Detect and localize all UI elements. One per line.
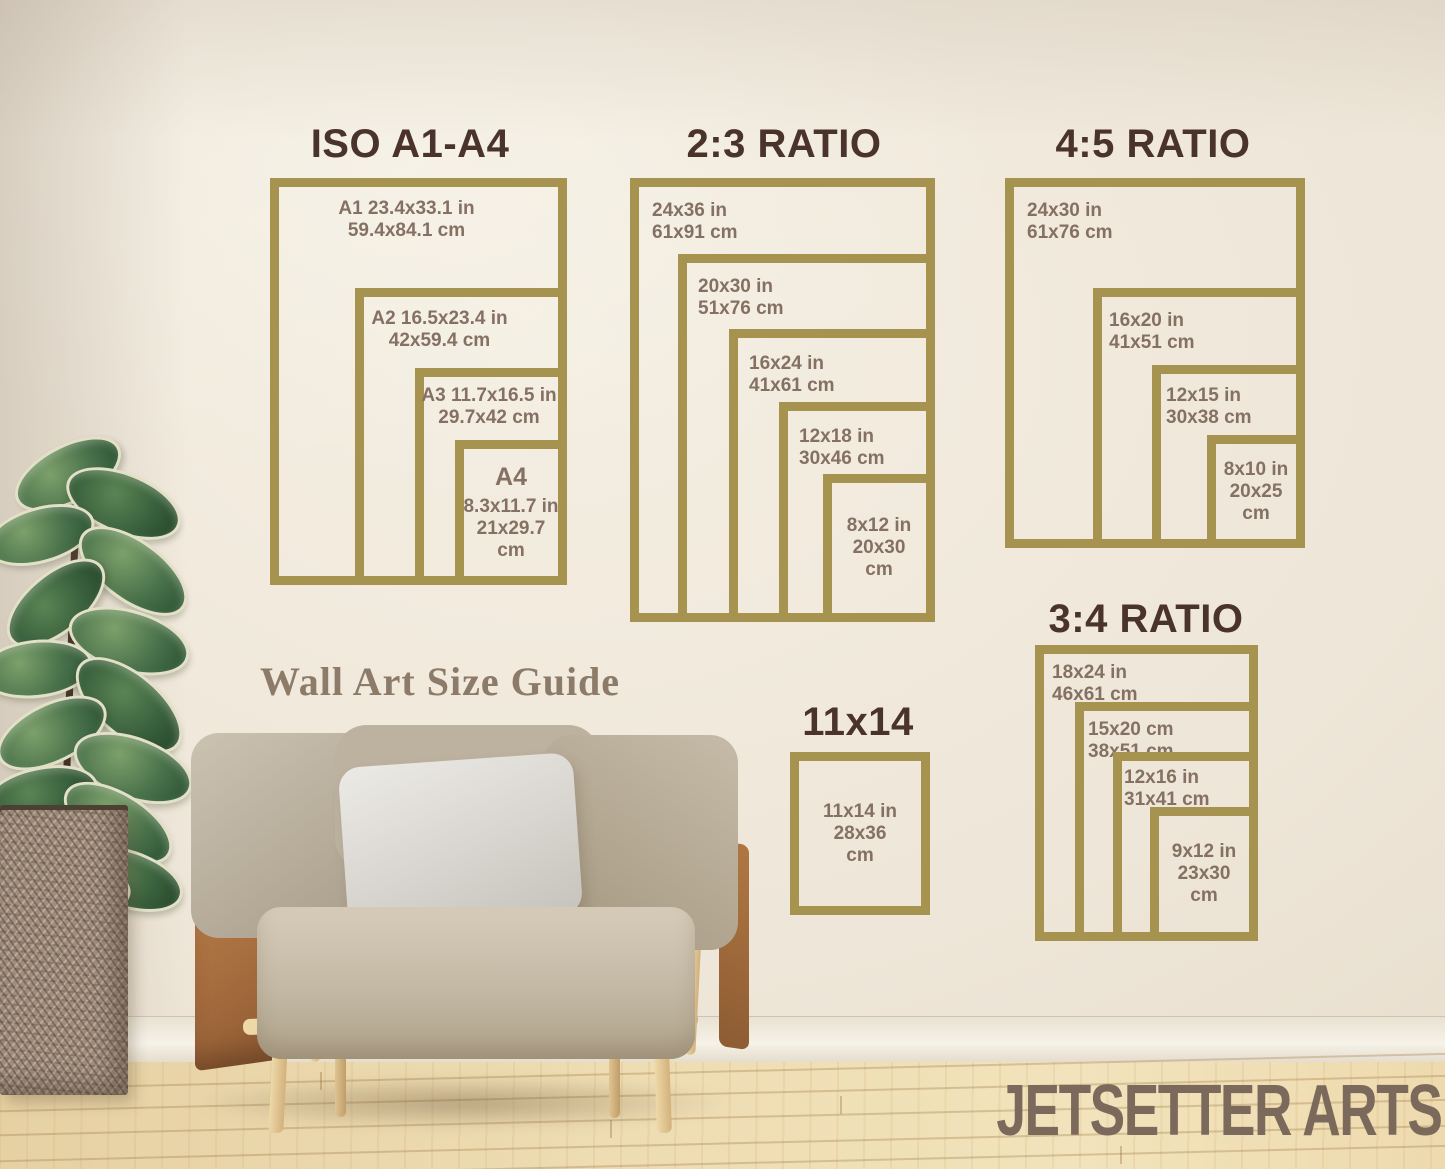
panel-r23: 2:3 RATIO24x36 in61x91 cm20x30 in51x76 c… <box>630 178 935 622</box>
size-label: 12x15 in30x38 cm <box>1166 385 1252 429</box>
size-label-line: 18x24 in <box>1052 662 1138 684</box>
size-label-line: 9x12 in <box>1172 841 1236 863</box>
woven-basket-pot <box>0 810 128 1095</box>
panel-r34: 3:4 RATIO18x24 in46x61 cm15x20 cm38x51 c… <box>1035 645 1258 941</box>
size-label-line: 41x51 cm <box>1109 332 1195 354</box>
panel-title: 2:3 RATIO <box>687 122 882 166</box>
size-label: 24x36 in61x91 cm <box>652 200 738 244</box>
size-label-line: 20x25 <box>1224 481 1288 503</box>
size-label: 20x30 in51x76 cm <box>698 276 784 320</box>
size-label: 8x10 in20x25cm <box>1224 459 1288 525</box>
size-label: 8x12 in20x30cm <box>847 515 911 581</box>
panel-r45: 4:5 RATIO24x30 in61x76 cm16x20 in41x51 c… <box>1005 178 1305 548</box>
throw-pillow <box>338 752 584 930</box>
size-label-line: A1 23.4x33.1 in <box>294 198 519 220</box>
size-label: 16x20 in41x51 cm <box>1109 310 1195 354</box>
size-label: 12x18 in30x46 cm <box>799 426 885 470</box>
size-label-line: 59.4x84.1 cm <box>294 220 519 242</box>
size-label-line: 12x18 in <box>799 426 885 448</box>
size-label-line: 12x15 in <box>1166 385 1252 407</box>
size-label-line: 20x30 in <box>698 276 784 298</box>
size-frame: 9x12 in23x30cm <box>1150 807 1258 941</box>
panel-title: 3:4 RATIO <box>1049 597 1244 641</box>
size-label-line: 51x76 cm <box>698 298 784 320</box>
seat-cushion <box>257 907 695 1059</box>
size-frame: 8x12 in20x30cm <box>823 474 935 622</box>
brand-watermark: JETSETTER ARTS <box>996 1079 1441 1143</box>
wall-art-size-guide-mockup: Wall Art Size Guide ISO A1-A4A1 23.4x33.… <box>0 0 1445 1169</box>
size-label-line: 61x76 cm <box>1027 222 1113 244</box>
size-label-line: A3 11.7x16.5 in <box>418 385 560 407</box>
size-label: 9x12 in23x30cm <box>1172 841 1236 907</box>
size-label: 16x24 in41x61 cm <box>749 353 835 397</box>
size-label: A48.3x11.7 in21x29.7cm <box>463 463 558 562</box>
size-label-line: 16x20 in <box>1109 310 1195 332</box>
size-label-line: A2 16.5x23.4 in <box>362 308 517 330</box>
size-frame: A48.3x11.7 in21x29.7cm <box>455 440 567 585</box>
panel-title: ISO A1-A4 <box>311 122 510 166</box>
size-label-line: 23x30 <box>1172 863 1236 885</box>
size-label: 11x14 in28x36cm <box>823 801 897 867</box>
panel-title: 11x14 <box>802 700 914 744</box>
size-label-line: 24x30 in <box>1027 200 1113 222</box>
size-label-line: 41x61 cm <box>749 375 835 397</box>
potted-plant <box>0 445 185 1110</box>
size-label-line: 8x10 in <box>1224 459 1288 481</box>
size-label-line: 15x20 cm <box>1088 719 1174 741</box>
size-label-line: 20x30 <box>847 537 911 559</box>
size-label-line: 12x16 in <box>1124 767 1210 789</box>
size-guide-caption: Wall Art Size Guide <box>260 658 620 705</box>
panel-iso: ISO A1-A4A1 23.4x33.1 in59.4x84.1 cmA2 1… <box>270 178 567 585</box>
size-label: A3 11.7x16.5 in29.7x42 cm <box>418 385 560 429</box>
size-label-line: 42x59.4 cm <box>362 330 517 352</box>
size-label-line: 30x46 cm <box>799 448 885 470</box>
size-label-line: cm <box>847 559 911 581</box>
armchair <box>185 725 750 1140</box>
size-label-line: 8x12 in <box>847 515 911 537</box>
size-label-line: 24x36 in <box>652 200 738 222</box>
size-label-line: cm <box>1224 503 1288 525</box>
size-label: 12x16 in31x41 cm <box>1124 767 1210 811</box>
size-frame: 11x14 in28x36cm <box>790 752 930 915</box>
floor-plank-joint <box>840 1096 842 1114</box>
panel-p1114: 11x1411x14 in28x36cm <box>790 752 930 915</box>
size-label: 24x30 in61x76 cm <box>1027 200 1113 244</box>
size-label: A1 23.4x33.1 in59.4x84.1 cm <box>294 198 519 242</box>
size-label-line: 29.7x42 cm <box>418 407 560 429</box>
size-label-line: 28x36 <box>823 823 897 845</box>
size-label-line: A4 <box>463 463 558 492</box>
size-label-line: 8.3x11.7 in <box>463 496 558 518</box>
size-frame: 8x10 in20x25cm <box>1207 435 1305 548</box>
panel-title: 4:5 RATIO <box>1056 122 1251 166</box>
size-label-line: 21x29.7 <box>463 518 558 540</box>
size-label-line: 11x14 in <box>823 801 897 823</box>
size-label-line: 30x38 cm <box>1166 407 1252 429</box>
size-label-line: 16x24 in <box>749 353 835 375</box>
size-label-line: cm <box>1172 885 1236 907</box>
size-label: 18x24 in46x61 cm <box>1052 662 1138 706</box>
size-label-line: 61x91 cm <box>652 222 738 244</box>
size-label: A2 16.5x23.4 in42x59.4 cm <box>362 308 517 352</box>
size-label-line: cm <box>463 540 558 562</box>
size-label-line: cm <box>823 845 897 867</box>
